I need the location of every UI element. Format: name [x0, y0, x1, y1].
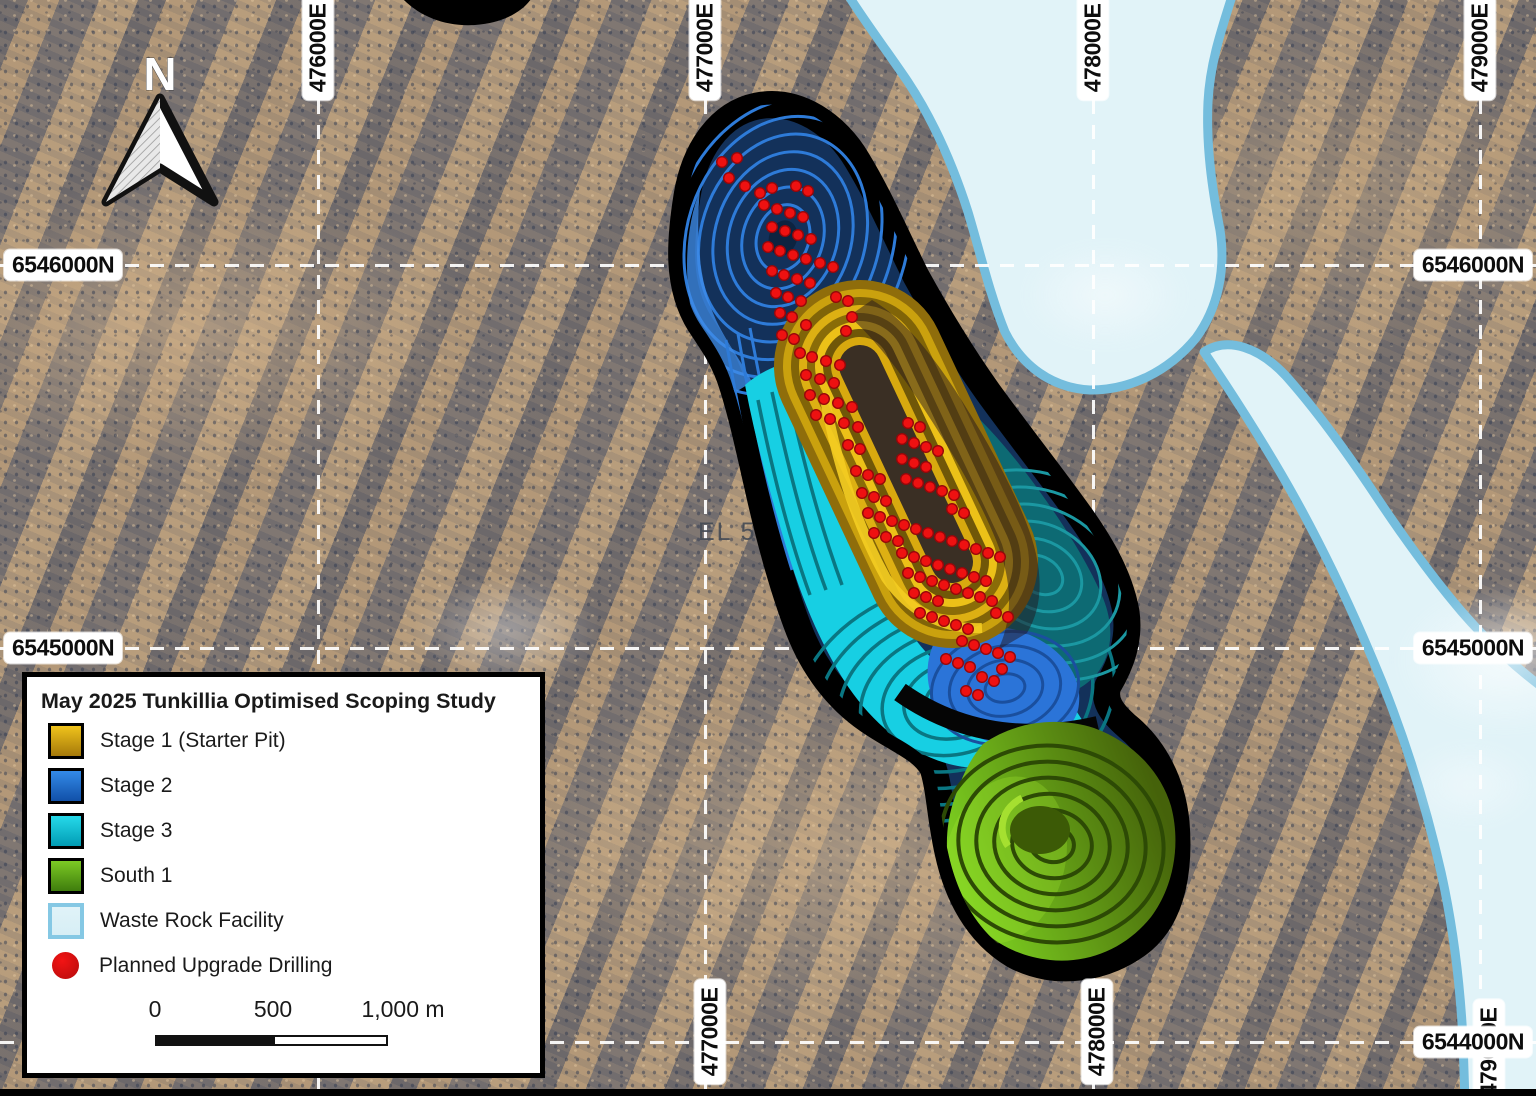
northing-label: 6544000N [1414, 1026, 1532, 1057]
legend-row-stage3: Stage 3 [27, 808, 540, 853]
legend-items: Stage 1 (Starter Pit)Stage 2Stage 3South… [27, 718, 540, 988]
stage3-swatch [48, 813, 84, 849]
drill-dot-icon [52, 952, 79, 979]
scale-bar-filled-segment [157, 1037, 275, 1044]
legend-label: Planned Upgrade Drilling [99, 954, 332, 978]
legend-row-wrf: Waste Rock Facility [27, 898, 540, 943]
legend-label: Stage 3 [100, 819, 172, 843]
map-legend: May 2025 Tunkillia Optimised Scoping Stu… [22, 672, 545, 1078]
legend-label: Stage 1 (Starter Pit) [100, 729, 286, 753]
wrf-swatch [48, 903, 84, 939]
easting-label: 479000E [1464, 0, 1495, 100]
easting-label: 478000E [1081, 980, 1112, 1085]
northing-label: 6546000N [4, 249, 122, 280]
stage1-swatch [48, 723, 84, 759]
map-canvas: EL 590 [0, 0, 1536, 1096]
legend-row-drilling: Planned Upgrade Drilling [27, 943, 540, 988]
scale-tick-label: 1,000 m [361, 996, 444, 1023]
scale-bar: 05001,000 m [27, 996, 540, 1066]
stage2-swatch [48, 768, 84, 804]
easting-label: 477000E [694, 980, 725, 1085]
legend-label: Stage 2 [100, 774, 172, 798]
map-bottom-border [0, 1089, 1536, 1096]
northing-label: 6545000N [4, 632, 122, 663]
legend-label: Waste Rock Facility [100, 909, 284, 933]
legend-row-stage1: Stage 1 (Starter Pit) [27, 718, 540, 763]
scale-tick-label: 500 [254, 996, 292, 1023]
easting-label: 476000E [302, 0, 333, 100]
legend-title: May 2025 Tunkillia Optimised Scoping Stu… [41, 689, 530, 714]
legend-label: South 1 [100, 864, 172, 888]
easting-label: 478000E [1077, 0, 1108, 100]
scale-bar-track [155, 1035, 388, 1046]
south1-swatch [48, 858, 84, 894]
northing-label: 6546000N [1414, 249, 1532, 280]
scale-tick-label: 0 [149, 996, 162, 1023]
legend-row-south1: South 1 [27, 853, 540, 898]
legend-row-stage2: Stage 2 [27, 763, 540, 808]
northing-label: 6545000N [1414, 632, 1532, 663]
easting-label: 477000E [689, 0, 720, 100]
